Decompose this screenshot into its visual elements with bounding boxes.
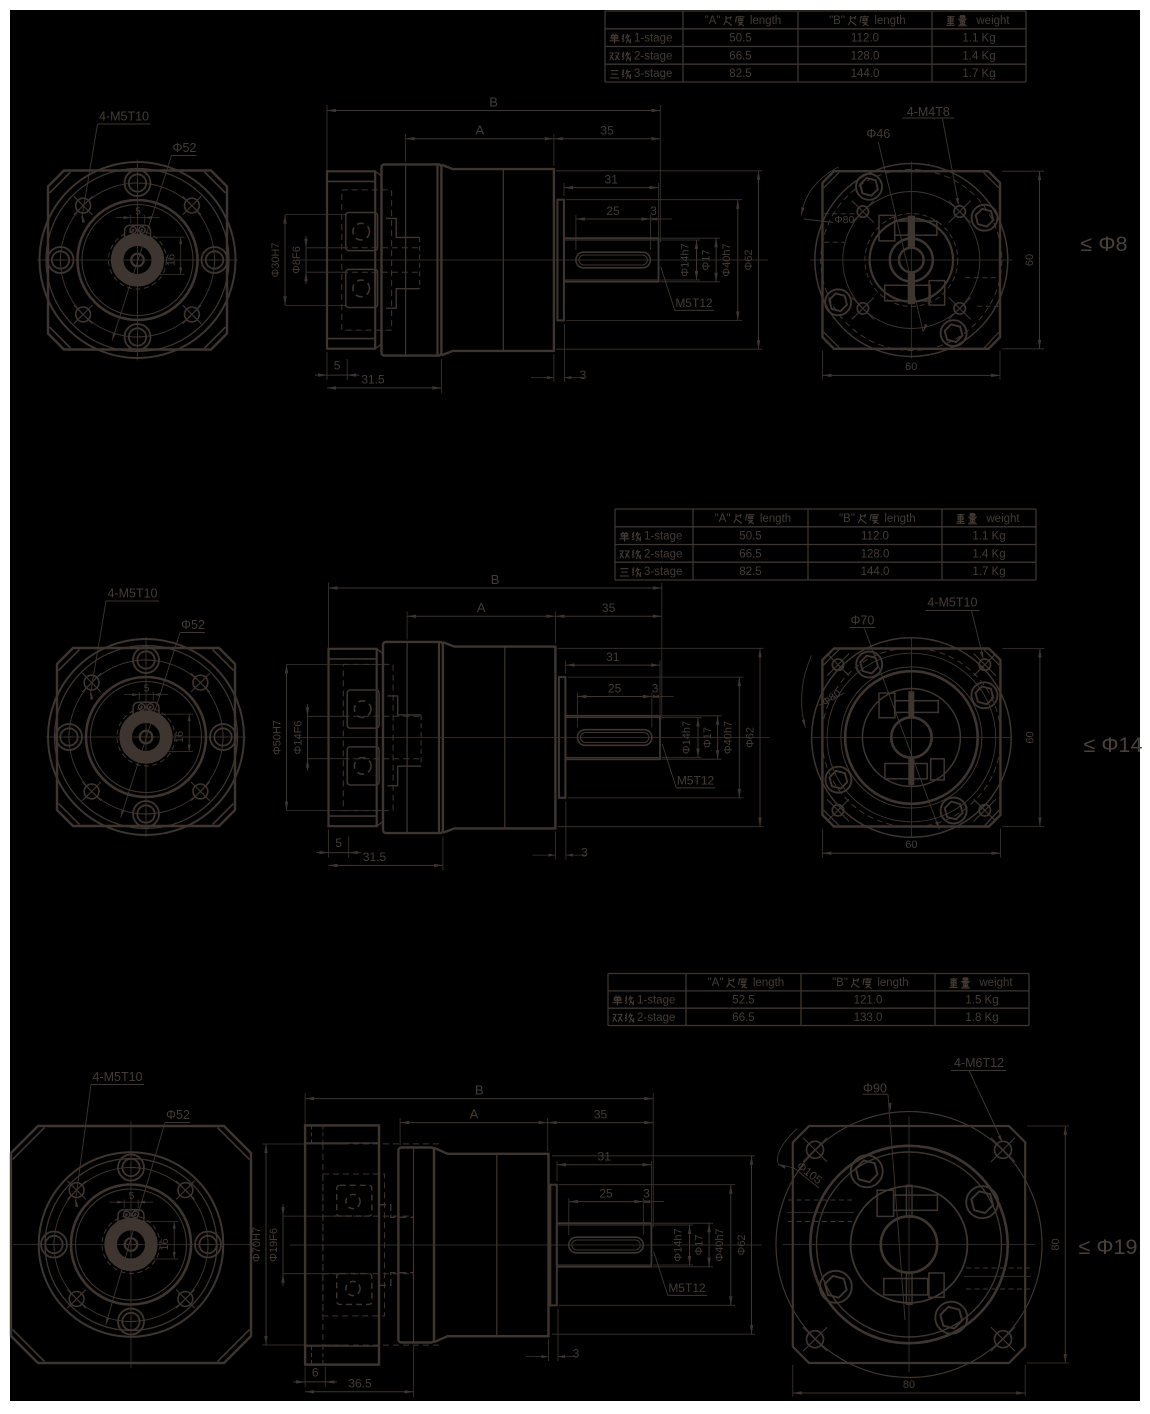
svg-text:Φ70H7: Φ70H7: [251, 1227, 263, 1262]
svg-text:6: 6: [312, 1365, 319, 1379]
svg-text:2-stage: 2-stage: [637, 1012, 675, 1024]
svg-text:128.0: 128.0: [851, 50, 880, 62]
svg-text:80: 80: [1050, 1238, 1062, 1250]
svg-text:B: B: [491, 572, 500, 587]
svg-text:4-M5T10: 4-M5T10: [927, 596, 977, 610]
svg-text:128.0: 128.0: [861, 548, 890, 560]
svg-text:weight: weight: [975, 15, 1010, 27]
svg-text:66.5: 66.5: [729, 50, 751, 62]
svg-text:"B": "B": [829, 15, 845, 27]
svg-text:≤ Φ19: ≤ Φ19: [1079, 1235, 1138, 1259]
svg-text:Φ17: Φ17: [702, 727, 714, 748]
svg-text:≤ Φ8: ≤ Φ8: [1081, 232, 1128, 256]
svg-text:Φ40h7: Φ40h7: [721, 243, 733, 276]
svg-text:31: 31: [606, 650, 620, 664]
svg-text:M5T12: M5T12: [677, 774, 715, 788]
svg-text:length: length: [750, 15, 781, 27]
svg-text:16: 16: [166, 254, 178, 266]
svg-text:3: 3: [580, 368, 587, 382]
svg-text:31: 31: [598, 1150, 612, 1164]
svg-text:Φ17: Φ17: [701, 249, 713, 270]
svg-text:"B": "B": [832, 977, 848, 989]
svg-text:Φ17: Φ17: [694, 1234, 706, 1255]
svg-text:A: A: [470, 1107, 479, 1122]
svg-text:Φ62: Φ62: [743, 249, 755, 270]
svg-text:133.0: 133.0: [854, 1012, 883, 1024]
svg-text:"B": "B": [839, 513, 855, 525]
svg-text:5: 5: [144, 684, 150, 695]
svg-text:"A": "A": [708, 977, 724, 989]
svg-text:Φ14h7: Φ14h7: [681, 721, 693, 754]
svg-text:3: 3: [581, 846, 588, 860]
svg-text:25: 25: [608, 682, 622, 696]
svg-text:1.1 Kg: 1.1 Kg: [972, 531, 1005, 543]
svg-text:Φ40h7: Φ40h7: [723, 721, 735, 754]
svg-text:length: length: [753, 977, 784, 989]
svg-text:3: 3: [573, 1347, 580, 1361]
svg-text:66.5: 66.5: [732, 1012, 754, 1024]
svg-text:1.5 Kg: 1.5 Kg: [965, 995, 998, 1007]
svg-text:60: 60: [905, 839, 917, 851]
svg-text:length: length: [874, 15, 905, 27]
svg-text:4-M5T10: 4-M5T10: [92, 1070, 142, 1084]
svg-text:Φ90: Φ90: [863, 1081, 887, 1095]
svg-text:Φ62: Φ62: [736, 1234, 748, 1255]
svg-text:Φ40h7: Φ40h7: [714, 1228, 726, 1261]
svg-text:35: 35: [602, 601, 616, 615]
svg-text:3-stage: 3-stage: [644, 566, 682, 578]
svg-text:1.7 Kg: 1.7 Kg: [962, 68, 995, 80]
svg-text:1-stage: 1-stage: [634, 33, 672, 45]
svg-text:5: 5: [129, 1191, 135, 1202]
svg-text:60: 60: [905, 361, 917, 373]
svg-text:Φ14h7: Φ14h7: [673, 1228, 685, 1261]
svg-text:2-stage: 2-stage: [644, 548, 682, 560]
svg-text:31: 31: [605, 173, 619, 187]
svg-text:112.0: 112.0: [861, 531, 889, 543]
svg-text:50.5: 50.5: [739, 531, 761, 543]
svg-text:52.5: 52.5: [732, 995, 754, 1007]
svg-text:Φ50H7: Φ50H7: [272, 720, 284, 755]
svg-text:112.0: 112.0: [851, 33, 879, 45]
svg-text:36.5: 36.5: [348, 1376, 372, 1390]
svg-text:1.4 Kg: 1.4 Kg: [962, 50, 995, 62]
svg-text:≤ Φ14: ≤ Φ14: [1084, 733, 1143, 757]
svg-text:1-stage: 1-stage: [644, 531, 682, 543]
svg-text:4-M6T12: 4-M6T12: [954, 1056, 1004, 1070]
svg-text:length: length: [884, 513, 915, 525]
svg-text:1-stage: 1-stage: [637, 995, 675, 1007]
svg-text:35: 35: [600, 124, 614, 138]
svg-text:25: 25: [599, 1187, 613, 1201]
svg-text:80: 80: [903, 1379, 915, 1391]
svg-text:1.7 Kg: 1.7 Kg: [972, 566, 1005, 578]
svg-text:weight: weight: [978, 977, 1013, 989]
svg-text:16: 16: [174, 731, 186, 743]
svg-text:Φ8F6: Φ8F6: [291, 246, 303, 274]
svg-text:144.0: 144.0: [861, 566, 890, 578]
svg-text:Φ19F6: Φ19F6: [268, 1228, 280, 1262]
svg-text:weight: weight: [985, 513, 1020, 525]
svg-text:66.5: 66.5: [739, 548, 761, 560]
svg-text:length: length: [760, 513, 791, 525]
svg-text:31.5: 31.5: [363, 850, 387, 864]
svg-text:Φ70: Φ70: [850, 614, 874, 628]
svg-text:5: 5: [135, 207, 141, 218]
svg-text:Φ30H7: Φ30H7: [270, 242, 282, 277]
svg-text:16: 16: [159, 1238, 171, 1250]
svg-text:Φ52: Φ52: [166, 1108, 190, 1122]
svg-text:Φ52: Φ52: [181, 618, 205, 632]
svg-text:1.8 Kg: 1.8 Kg: [965, 1012, 998, 1024]
svg-text:"A": "A": [705, 15, 721, 27]
svg-text:82.5: 82.5: [739, 566, 761, 578]
svg-text:M5T12: M5T12: [668, 1281, 706, 1295]
svg-text:length: length: [877, 977, 908, 989]
svg-text:2-stage: 2-stage: [634, 50, 672, 62]
svg-text:Φ62: Φ62: [745, 727, 757, 748]
svg-text:Φ52: Φ52: [173, 141, 197, 155]
svg-text:5: 5: [335, 836, 342, 850]
svg-text:3: 3: [652, 682, 659, 696]
svg-text:A: A: [477, 600, 486, 615]
svg-text:M5T12: M5T12: [675, 296, 713, 310]
svg-text:4-M4T8: 4-M4T8: [907, 105, 950, 119]
svg-text:B: B: [489, 95, 498, 110]
svg-text:Φ14F6: Φ14F6: [293, 721, 305, 755]
svg-text:"A": "A": [715, 513, 731, 525]
svg-text:25: 25: [606, 204, 620, 218]
svg-text:31.5: 31.5: [361, 373, 385, 387]
svg-text:A: A: [475, 123, 484, 138]
svg-text:50.5: 50.5: [729, 33, 751, 45]
svg-text:5: 5: [334, 359, 341, 373]
svg-text:Φ80: Φ80: [834, 214, 854, 226]
svg-text:144.0: 144.0: [851, 68, 880, 80]
svg-text:Φ14h7: Φ14h7: [680, 243, 692, 276]
svg-text:4-M5T10: 4-M5T10: [99, 110, 149, 124]
svg-text:3: 3: [650, 204, 657, 218]
svg-text:1.4 Kg: 1.4 Kg: [972, 548, 1005, 560]
svg-text:35: 35: [594, 1108, 608, 1122]
svg-text:60: 60: [1024, 731, 1036, 743]
svg-text:121.0: 121.0: [854, 995, 883, 1007]
svg-text:1.1 Kg: 1.1 Kg: [962, 33, 995, 45]
svg-text:3-stage: 3-stage: [634, 68, 672, 80]
svg-text:4-M5T10: 4-M5T10: [107, 587, 157, 601]
svg-text:B: B: [475, 1083, 484, 1098]
svg-text:82.5: 82.5: [729, 68, 751, 80]
svg-text:3: 3: [643, 1187, 650, 1201]
svg-text:60: 60: [1024, 254, 1036, 266]
svg-text:Φ46: Φ46: [866, 127, 890, 141]
